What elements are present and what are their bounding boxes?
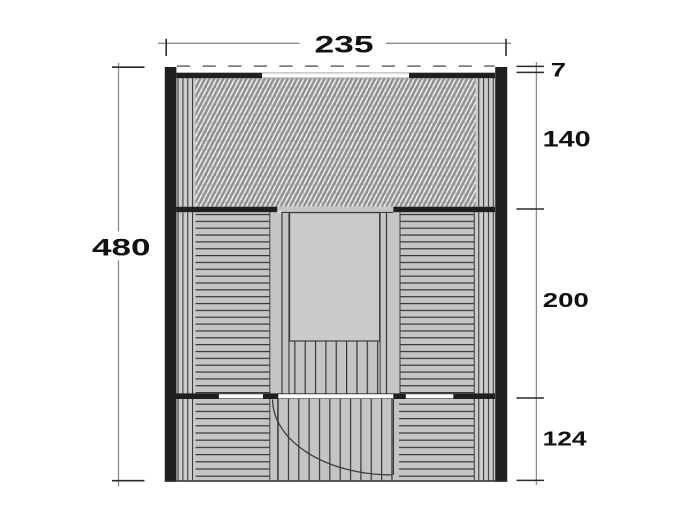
svg-text:480: 480 xyxy=(92,235,151,262)
svg-text:7: 7 xyxy=(551,60,566,81)
svg-text:140: 140 xyxy=(543,126,591,151)
svg-text:235: 235 xyxy=(315,31,374,58)
svg-text:200: 200 xyxy=(543,290,589,312)
svg-text:124: 124 xyxy=(543,428,588,450)
